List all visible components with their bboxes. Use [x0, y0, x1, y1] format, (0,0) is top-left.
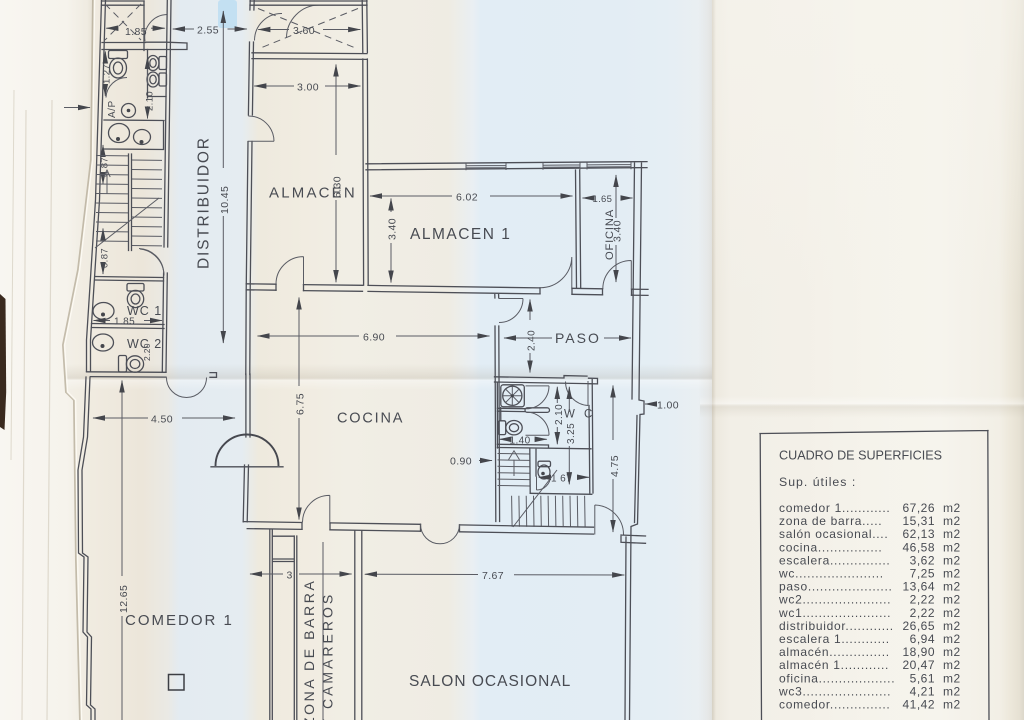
svg-text:7.67: 7.67 — [482, 570, 504, 582]
svg-text:comedor...............: comedor............... — [779, 698, 890, 712]
svg-text:2.55: 2.55 — [197, 25, 219, 37]
svg-text:m2: m2 — [943, 632, 961, 646]
svg-text:2.10: 2.10 — [145, 91, 156, 111]
svg-text:4,21: 4,21 — [910, 684, 935, 698]
svg-text:20,47: 20,47 — [902, 658, 935, 672]
svg-text:wc2......................: wc2...................... — [778, 593, 891, 607]
svg-text:m2: m2 — [943, 593, 961, 607]
svg-text:18,90: 18,90 — [902, 645, 935, 659]
svg-text:zona de barra.....: zona de barra..... — [779, 514, 882, 528]
svg-text:DISTRIBUIDOR: DISTRIBUIDOR — [196, 136, 213, 269]
svg-text:escalera...............: escalera............... — [779, 553, 890, 567]
svg-text:1.65: 1.65 — [593, 194, 613, 205]
svg-text:2.40: 2.40 — [527, 330, 538, 351]
svg-text:46,58: 46,58 — [902, 540, 935, 554]
svg-text:COCINA: COCINA — [337, 411, 404, 427]
svg-text:paso.....................: paso..................... — [779, 580, 893, 594]
svg-text:PASO: PASO — [555, 330, 601, 346]
svg-text:2,22: 2,22 — [910, 606, 935, 620]
svg-text:m2: m2 — [943, 514, 961, 528]
svg-text:CUADRO DE SUPERFICIES: CUADRO DE SUPERFICIES — [779, 449, 942, 463]
svg-text:m2: m2 — [943, 527, 961, 541]
svg-text:1.85: 1.85 — [114, 317, 135, 328]
svg-text:3.40: 3.40 — [387, 218, 399, 240]
svg-text:3,62: 3,62 — [910, 553, 935, 567]
svg-text:6.30: 6.30 — [332, 176, 344, 198]
svg-text:62,13: 62,13 — [902, 527, 935, 541]
svg-text:SALON OCASIONAL: SALON OCASIONAL — [409, 673, 571, 690]
svg-text:distribuidor............: distribuidor............ — [779, 619, 894, 633]
svg-text:m2: m2 — [943, 606, 961, 620]
svg-text:3: 3 — [287, 569, 293, 581]
svg-text:6.75: 6.75 — [295, 393, 307, 415]
svg-text:41,42: 41,42 — [902, 698, 935, 712]
svg-text:wc1......................: wc1...................... — [778, 606, 891, 620]
svg-text:COMEDOR 1: COMEDOR 1 — [125, 612, 234, 629]
svg-text:13,64: 13,64 — [902, 580, 935, 594]
svg-text:0.90: 0.90 — [450, 456, 472, 468]
svg-text:67,26: 67,26 — [902, 501, 935, 515]
svg-text:3.40: 3.40 — [612, 220, 624, 242]
svg-text:ZONA DE BARRA: ZONA DE BARRA — [301, 579, 317, 720]
svg-text:wc......................: wc...................... — [778, 567, 884, 581]
svg-text:m2: m2 — [943, 684, 961, 698]
svg-text:26,65: 26,65 — [902, 619, 935, 633]
svg-text:ALMACEN 1: ALMACEN 1 — [410, 226, 511, 243]
svg-text:m2: m2 — [943, 658, 961, 672]
svg-text:almacén 1............: almacén 1............ — [779, 658, 889, 672]
svg-text:7,25: 7,25 — [910, 567, 935, 581]
svg-text:2.10: 2.10 — [554, 404, 565, 425]
svg-text:m2: m2 — [943, 671, 961, 685]
svg-text:m2: m2 — [943, 580, 961, 594]
svg-text:wc3......................: wc3...................... — [778, 684, 891, 698]
svg-text:15,31: 15,31 — [902, 514, 935, 528]
svg-text:3.25: 3.25 — [566, 423, 577, 444]
svg-text:cocina................: cocina................ — [779, 540, 882, 554]
svg-text:3.60: 3.60 — [293, 25, 315, 37]
svg-text:Y CAMAREROS: Y CAMAREROS — [320, 592, 336, 720]
svg-text:6.90: 6.90 — [363, 331, 385, 343]
svg-text:2,22: 2,22 — [910, 593, 935, 607]
svg-text:m2: m2 — [943, 553, 961, 567]
svg-text:5,61: 5,61 — [910, 671, 935, 685]
svg-text:1.00: 1.00 — [657, 399, 679, 411]
svg-text:m2: m2 — [943, 540, 961, 554]
svg-text:3.00: 3.00 — [297, 81, 319, 93]
svg-text:4.75: 4.75 — [609, 455, 621, 477]
svg-text:m2: m2 — [943, 619, 961, 633]
svg-text:m2: m2 — [943, 645, 961, 659]
svg-text:ALMACEN: ALMACEN — [269, 185, 357, 202]
svg-text:Sup. útiles :: Sup. útiles : — [779, 475, 856, 489]
svg-text:12.65: 12.65 — [118, 585, 130, 613]
svg-text:almacén...............: almacén............... — [779, 645, 890, 659]
svg-text:m2: m2 — [943, 698, 961, 712]
svg-text:1.85: 1.85 — [125, 26, 147, 38]
svg-text:6,94: 6,94 — [910, 632, 935, 646]
svg-text:6.02: 6.02 — [456, 192, 478, 204]
svg-text:W C: W C — [564, 409, 595, 421]
svg-text:0.87: 0.87 — [100, 248, 111, 268]
svg-text:oficina...................: oficina................... — [779, 671, 895, 685]
svg-text:10.45: 10.45 — [219, 186, 231, 214]
svg-text:salón ocasional....: salón ocasional.... — [779, 527, 888, 541]
svg-text:A/P: A/P — [107, 100, 118, 118]
svg-text:comedor 1............: comedor 1............ — [779, 501, 890, 515]
svg-text:2.20: 2.20 — [142, 343, 152, 361]
svg-text:m2: m2 — [943, 567, 961, 581]
svg-text:1 67: 1 67 — [551, 473, 572, 484]
svg-text:escalera 1............: escalera 1............ — [779, 632, 890, 646]
svg-text:4.50: 4.50 — [151, 413, 173, 425]
svg-text:1.27: 1.27 — [102, 64, 113, 84]
svg-text:m2: m2 — [943, 501, 961, 515]
